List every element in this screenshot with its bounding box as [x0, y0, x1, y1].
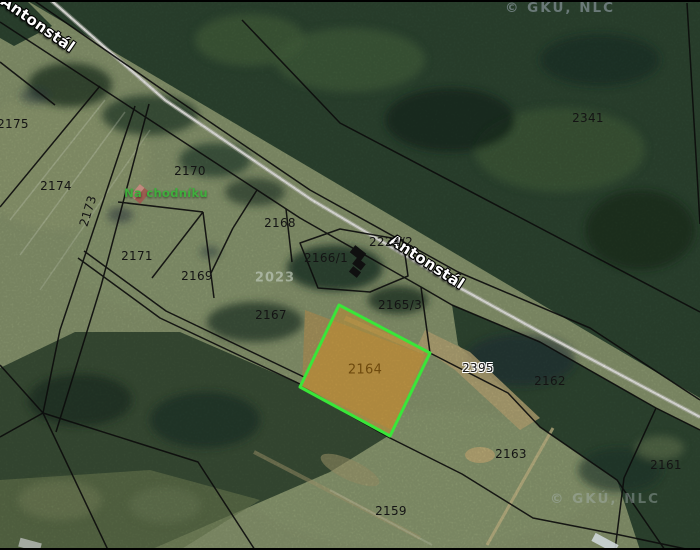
parcel-label-2175[interactable]: 2175 [0, 117, 29, 131]
parcel-label-2170[interactable]: 2170 [174, 164, 206, 178]
map-edge-top [0, 0, 700, 2]
parcel-label-2341[interactable]: 2341 [572, 111, 604, 125]
parcel-label-2161[interactable]: 2161 [650, 458, 682, 472]
parcel-label-2395[interactable]: 2395 [462, 361, 494, 375]
selected-parcel-label-2164[interactable]: 2164 [348, 363, 382, 378]
parcel-label-2159[interactable]: 2159 [375, 504, 407, 518]
parcel-label-2167[interactable]: 2167 [255, 308, 287, 322]
parcel-label-2174[interactable]: 2174 [40, 179, 72, 193]
parcel-label-2162[interactable]: 2162 [534, 374, 566, 388]
parcel-label-2168[interactable]: 2168 [264, 216, 296, 230]
map-canvas [0, 0, 700, 550]
attribution-watermark-bottom: © GKÚ, NLC [550, 491, 660, 507]
place-label-na-chodniku: Na chodníku [124, 186, 208, 200]
parcel-label-2166-1[interactable]: 2166/1 [304, 251, 348, 265]
faded-overlay-label: 2023 [255, 271, 295, 286]
parcel-label-2169[interactable]: 2169 [181, 269, 213, 283]
parcel-label-2171[interactable]: 2171 [121, 249, 153, 263]
parcel-label-2165-3[interactable]: 2165/3 [378, 298, 422, 312]
cadastral-map-viewport[interactable]: Antonstál Antonstál 2175 2174 2173 2170 … [0, 0, 700, 550]
parcel-label-2163[interactable]: 2163 [495, 447, 527, 461]
aerial-imagery [0, 0, 700, 550]
attribution-watermark-top: © GKÚ, NLC [505, 0, 615, 16]
parcel-label-2224-2[interactable]: 2224/2 [369, 235, 413, 249]
